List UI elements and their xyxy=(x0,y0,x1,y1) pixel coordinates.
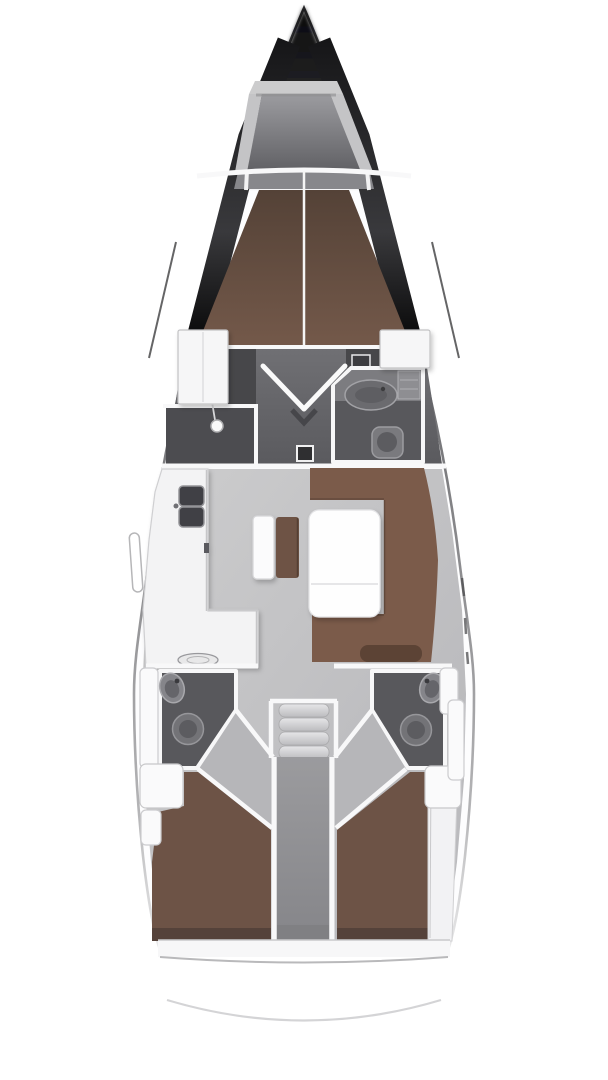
locker-port-aft xyxy=(140,764,183,808)
forward-heads-block xyxy=(163,330,442,466)
locker-port-lower xyxy=(141,810,161,845)
aft-berth-port-shadow xyxy=(152,928,271,941)
aft-berth-starboard-shadow xyxy=(337,928,428,941)
transom-band xyxy=(158,940,450,957)
anchor-locker-top-bar xyxy=(249,81,343,94)
floor-hatch xyxy=(297,446,313,461)
galley-sink-2 xyxy=(179,507,204,527)
companionway-step-1 xyxy=(279,704,329,717)
galley-sink-1 xyxy=(179,486,204,506)
galley-faucet-icon xyxy=(174,504,179,509)
shower-floor xyxy=(166,407,255,464)
forward-head-toilet-bowl xyxy=(377,432,397,452)
forward-shower xyxy=(163,396,256,466)
aft-head-port-toilet-bowl xyxy=(179,720,197,738)
forward-head-cabinet xyxy=(398,371,420,399)
shroud-line-starboard xyxy=(432,242,459,358)
settee-backrest xyxy=(360,645,422,662)
engine-corridor-floor xyxy=(277,757,329,944)
forward-head-faucet-icon xyxy=(381,387,385,391)
salon-table xyxy=(309,510,380,617)
locker-starboard-mid-2 xyxy=(448,700,464,780)
wardrobe-starboard xyxy=(380,330,430,368)
shower-head-icon xyxy=(211,420,223,432)
engine-compartment xyxy=(274,757,332,944)
companionway-step-2 xyxy=(279,718,329,731)
salon-table-top xyxy=(309,510,380,617)
aft-head-starboard-faucet-icon xyxy=(425,679,430,684)
yacht-floorplan-canvas xyxy=(0,0,608,1080)
aft-head-port-faucet-icon xyxy=(175,679,180,684)
companionway-step-3 xyxy=(279,732,329,745)
hull-window-salon-port-icon xyxy=(129,533,143,593)
aft-head-starboard-toilet-bowl xyxy=(407,721,425,739)
nav-bench xyxy=(253,516,274,579)
swim-platform-arc xyxy=(167,1000,441,1021)
transom-curve xyxy=(160,957,448,963)
shroud-line-port xyxy=(149,242,176,358)
aft-section xyxy=(140,666,464,944)
forward-head xyxy=(333,368,423,462)
nav-seat-cushion xyxy=(276,517,299,578)
galley-handle xyxy=(204,543,209,553)
stern xyxy=(158,940,450,1021)
locker-port-strip xyxy=(140,668,158,768)
yacht-floorplan xyxy=(0,0,608,1080)
